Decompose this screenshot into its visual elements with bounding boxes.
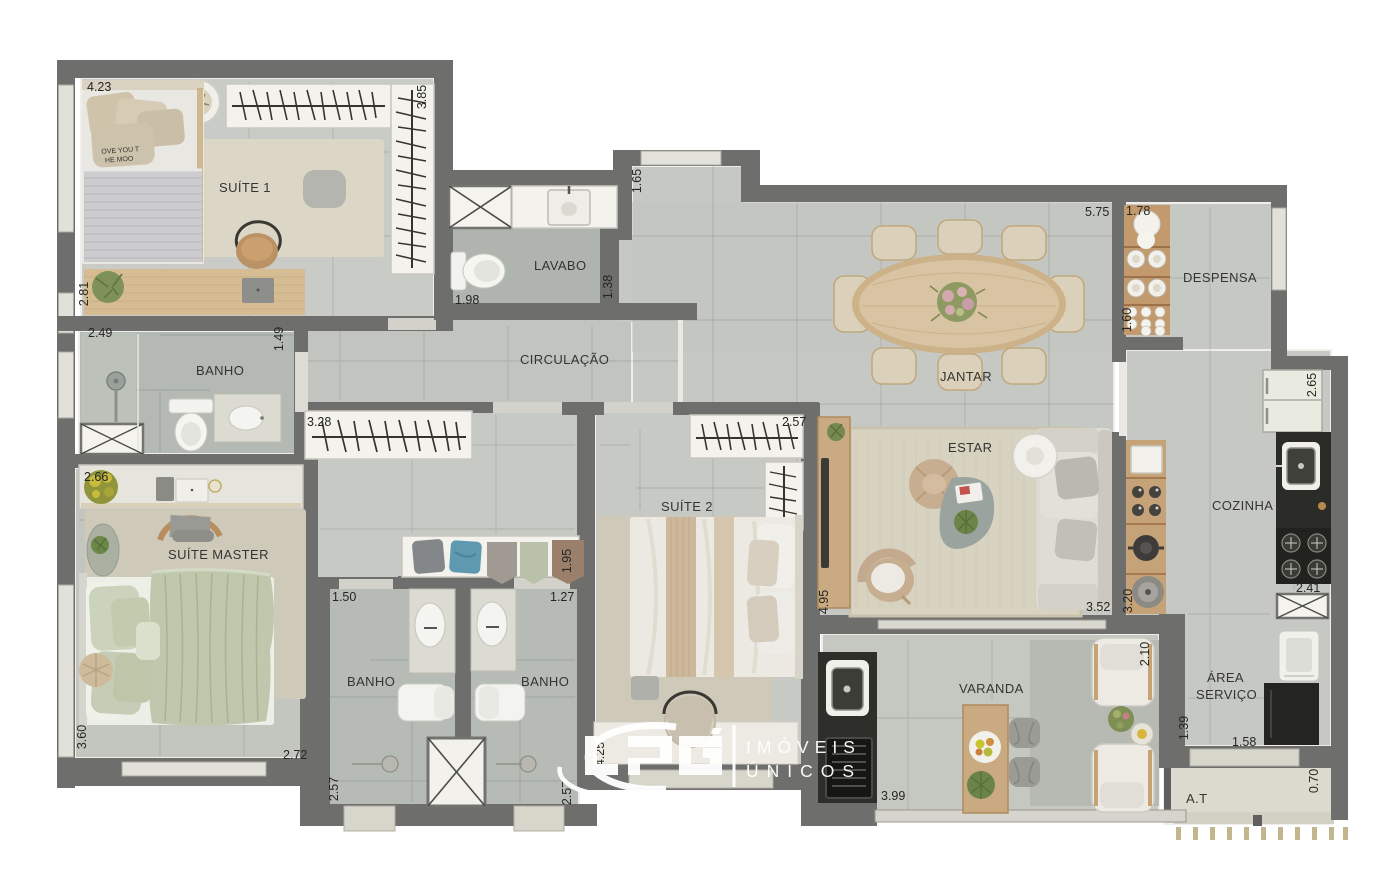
svg-text:BANHO: BANHO [521, 674, 569, 689]
svg-text:2.66: 2.66 [84, 470, 108, 484]
svg-text:2.81: 2.81 [77, 282, 91, 306]
svg-text:3.52: 3.52 [1086, 600, 1110, 614]
svg-text:BANHO: BANHO [196, 363, 244, 378]
svg-text:3.20: 3.20 [1121, 589, 1135, 613]
svg-text:LAVABO: LAVABO [534, 258, 587, 273]
svg-text:1.98: 1.98 [455, 293, 479, 307]
svg-text:2.57: 2.57 [327, 777, 341, 801]
svg-text:ESTAR: ESTAR [948, 440, 992, 455]
svg-text:1.60: 1.60 [1120, 308, 1134, 332]
svg-text:SUÍTE 1: SUÍTE 1 [219, 180, 271, 195]
svg-text:1.38: 1.38 [601, 275, 615, 299]
svg-text:2.57: 2.57 [782, 415, 806, 429]
svg-text:1.78: 1.78 [1126, 204, 1150, 218]
svg-text:2.10: 2.10 [1138, 642, 1152, 666]
svg-text:1.65: 1.65 [630, 169, 644, 193]
svg-text:2.65: 2.65 [1305, 373, 1319, 397]
svg-text:4.23: 4.23 [87, 80, 111, 94]
svg-text:ÁREA: ÁREA [1207, 670, 1244, 685]
svg-text:2.49: 2.49 [88, 326, 112, 340]
svg-text:1.50: 1.50 [332, 590, 356, 604]
svg-text:1.39: 1.39 [1177, 716, 1191, 740]
svg-text:1.95: 1.95 [560, 549, 574, 573]
svg-text:JANTAR: JANTAR [940, 369, 992, 384]
svg-text:3.60: 3.60 [75, 725, 89, 749]
svg-text:4.95: 4.95 [817, 590, 831, 614]
svg-text:VARANDA: VARANDA [959, 681, 1024, 696]
svg-text:2.41: 2.41 [1296, 581, 1320, 595]
svg-text:IMÓVEIS: IMÓVEIS [746, 736, 861, 757]
svg-text:1.27: 1.27 [550, 590, 574, 604]
svg-text:2.72: 2.72 [283, 748, 307, 762]
svg-text:0.70: 0.70 [1307, 769, 1321, 793]
svg-text:A.T: A.T [1186, 791, 1207, 806]
svg-text:SUÍTE MASTER: SUÍTE MASTER [168, 547, 269, 562]
svg-text:SERVIÇO: SERVIÇO [1196, 687, 1257, 702]
svg-text:COZINHA: COZINHA [1212, 498, 1273, 513]
svg-text:1.49: 1.49 [272, 327, 286, 351]
svg-text:3.85: 3.85 [415, 85, 429, 109]
svg-text:ÚNICOS: ÚNICOS [746, 760, 862, 781]
svg-text:3.28: 3.28 [307, 415, 331, 429]
svg-text:3.99: 3.99 [881, 789, 905, 803]
svg-text:CIRCULAÇÃO: CIRCULAÇÃO [520, 352, 609, 367]
svg-text:1.58: 1.58 [1232, 735, 1256, 749]
svg-text:BANHO: BANHO [347, 674, 395, 689]
svg-text:SUÍTE 2: SUÍTE 2 [661, 499, 713, 514]
svg-text:DESPENSA: DESPENSA [1183, 270, 1257, 285]
svg-text:5.75: 5.75 [1085, 205, 1109, 219]
